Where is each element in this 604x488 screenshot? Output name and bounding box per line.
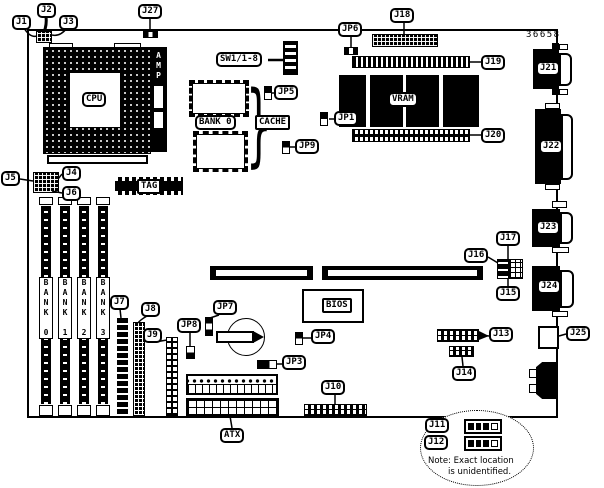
callout-jp7: JP7	[213, 300, 237, 315]
callout-j27: J27	[138, 4, 162, 19]
callout-j7: J7	[110, 295, 129, 310]
callout-j16: J16	[464, 248, 488, 263]
callout-jp4: JP4	[311, 329, 335, 344]
note-line-2: is unidentified.	[448, 467, 511, 477]
callout-jp6: JP6	[338, 22, 362, 37]
callout-j23: J23	[536, 220, 560, 235]
callout-atx: ATX	[220, 428, 244, 443]
callout-j11: J11	[425, 418, 449, 433]
callout-j8: J8	[141, 302, 160, 317]
callout-j12: J12	[424, 435, 448, 450]
callout-j24: J24	[537, 279, 561, 294]
callout-j9: J9	[143, 328, 162, 343]
cache-bank-label: BANK 0	[195, 115, 236, 130]
callout-jp9: JP9	[295, 139, 319, 154]
motherboard-diagram: CPU AMP BANK 0 } CACHE VRAM TAG BANK 0	[0, 0, 604, 488]
vram-label: VRAM	[388, 92, 418, 107]
callout-j20: J20	[481, 128, 505, 143]
callout-j18: J18	[390, 8, 414, 23]
callout-jp5: JP5	[274, 85, 298, 100]
part-number: 36658	[526, 30, 561, 40]
callout-j21: J21	[536, 61, 560, 76]
tag-label: TAG	[137, 179, 161, 194]
callout-jp1: JP1	[334, 111, 358, 126]
callout-j17: J17	[496, 231, 520, 246]
callout-sw1: SW1/1-8	[216, 52, 262, 67]
note-line-1: Note: Exact location	[428, 456, 514, 466]
callout-j22: J22	[539, 139, 563, 154]
cpu-label: CPU	[82, 92, 106, 107]
jumper-block-j12	[464, 436, 502, 451]
callout-j6: J6	[62, 186, 81, 201]
callout-j1: J1	[12, 15, 31, 30]
callout-jp3: JP3	[282, 355, 306, 370]
bios-label: BIOS	[322, 298, 352, 313]
jumper-block-j11	[464, 419, 502, 434]
callout-j25: J25	[566, 326, 590, 341]
callout-j5: J5	[1, 171, 20, 186]
callout-j4: J4	[62, 166, 81, 181]
callout-jp8: JP8	[177, 318, 201, 333]
callout-j3: J3	[59, 15, 78, 30]
callout-j19: J19	[481, 55, 505, 70]
cache-label: CACHE	[255, 115, 290, 130]
callout-j2: J2	[37, 3, 56, 18]
callout-j10: J10	[321, 380, 345, 395]
callout-j13: J13	[489, 327, 513, 342]
callout-j15: J15	[496, 286, 520, 301]
callout-j14: J14	[452, 366, 476, 381]
